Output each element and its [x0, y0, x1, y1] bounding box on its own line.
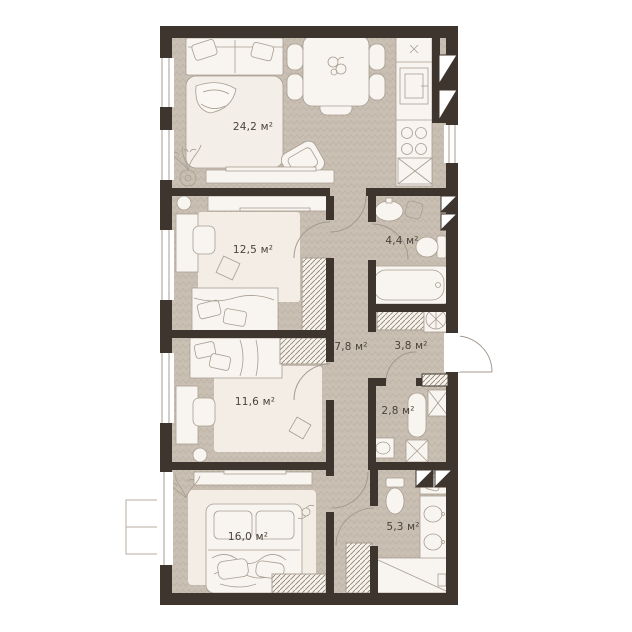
balcony [126, 500, 162, 554]
floor-plan-drawing [0, 0, 632, 632]
room-label-bedroom-1: 12,5 м² [233, 244, 273, 256]
wardrobe-icon [280, 338, 327, 364]
room-label-bathroom-1: 4,4 м² [385, 235, 418, 247]
sofa-icon [186, 38, 283, 75]
toilet-icon [386, 478, 404, 514]
entrance-door-arc [456, 336, 492, 372]
desk-chair-icon [193, 226, 215, 254]
shower-tray-icon [376, 558, 448, 593]
tv-icon [224, 470, 286, 474]
room-label-entry-hall: 3,8 м² [394, 340, 427, 352]
toilet-icon [416, 236, 446, 258]
wardrobe-icon [272, 574, 326, 593]
desk-chair-icon [193, 398, 215, 426]
stool-icon [193, 448, 207, 462]
washer-icon [406, 440, 428, 462]
floor-plan-page: 24,2 м² 12,5 м² 4,4 м² 7,8 м² 3,8 м² 11,… [0, 0, 632, 632]
double-washbasin-icon [420, 496, 448, 562]
bed-icon [192, 288, 278, 332]
kitchen-counter-icon [396, 36, 432, 186]
room-label-living-kitchen: 24,2 м² [233, 121, 273, 133]
corridor-wardrobe-icon [346, 543, 372, 593]
tv-icon [240, 208, 310, 211]
wardrobe-icon [302, 258, 330, 332]
stool-icon [177, 196, 191, 210]
room-label-corridor: 7,8 м² [334, 341, 367, 353]
bed-icon [190, 338, 282, 378]
bathtub-icon [370, 266, 448, 304]
room-label-bedroom-3: 16,0 м² [228, 531, 268, 543]
kitchen-cabinet-icon [398, 158, 432, 184]
shower-tray-icon [428, 390, 448, 416]
shaft-entry [422, 374, 448, 386]
room-label-wc: 2,8 м² [381, 405, 414, 417]
room-label-bedroom-2: 11,6 м² [235, 396, 275, 408]
kitchen-sink-icon [400, 68, 428, 104]
room-label-bathroom-2: 5,3 м² [386, 521, 419, 533]
